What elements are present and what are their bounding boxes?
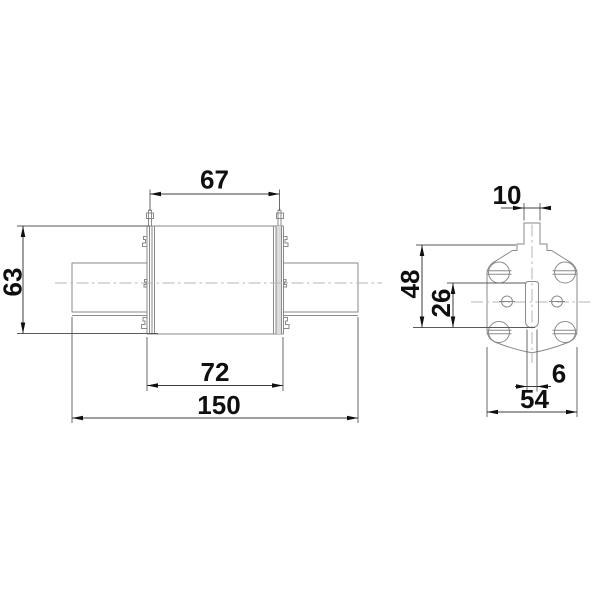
dimension-blade-width: 10 xyxy=(493,180,551,221)
dim-label-top-width: 67 xyxy=(200,165,229,195)
blade-left xyxy=(72,263,147,316)
fuse-technical-drawing: 67 63 72 150 xyxy=(0,0,600,600)
dim-label-slot-height: 26 xyxy=(426,289,456,318)
dim-label-blade-width: 10 xyxy=(493,180,522,210)
front-view: 67 63 72 150 xyxy=(0,165,382,424)
dimension-top-width: 67 xyxy=(150,165,280,212)
dim-label-body-width: 72 xyxy=(201,357,230,387)
drawing-canvas: 67 63 72 150 xyxy=(0,0,600,600)
dim-label-overall-height: 48 xyxy=(395,270,425,299)
side-view: 10 48 26 6 xyxy=(395,180,593,417)
grip-tab-right xyxy=(277,210,284,226)
dimension-body-width: 72 xyxy=(147,337,283,391)
blade-right xyxy=(284,263,359,316)
dim-label-total-length: 150 xyxy=(197,390,240,420)
dim-label-height: 63 xyxy=(0,268,28,297)
grip-tab-left xyxy=(147,210,154,226)
fuse-body xyxy=(142,210,290,334)
dim-label-slot-width: 6 xyxy=(552,359,566,389)
dim-label-end-body-width: 54 xyxy=(520,384,549,414)
